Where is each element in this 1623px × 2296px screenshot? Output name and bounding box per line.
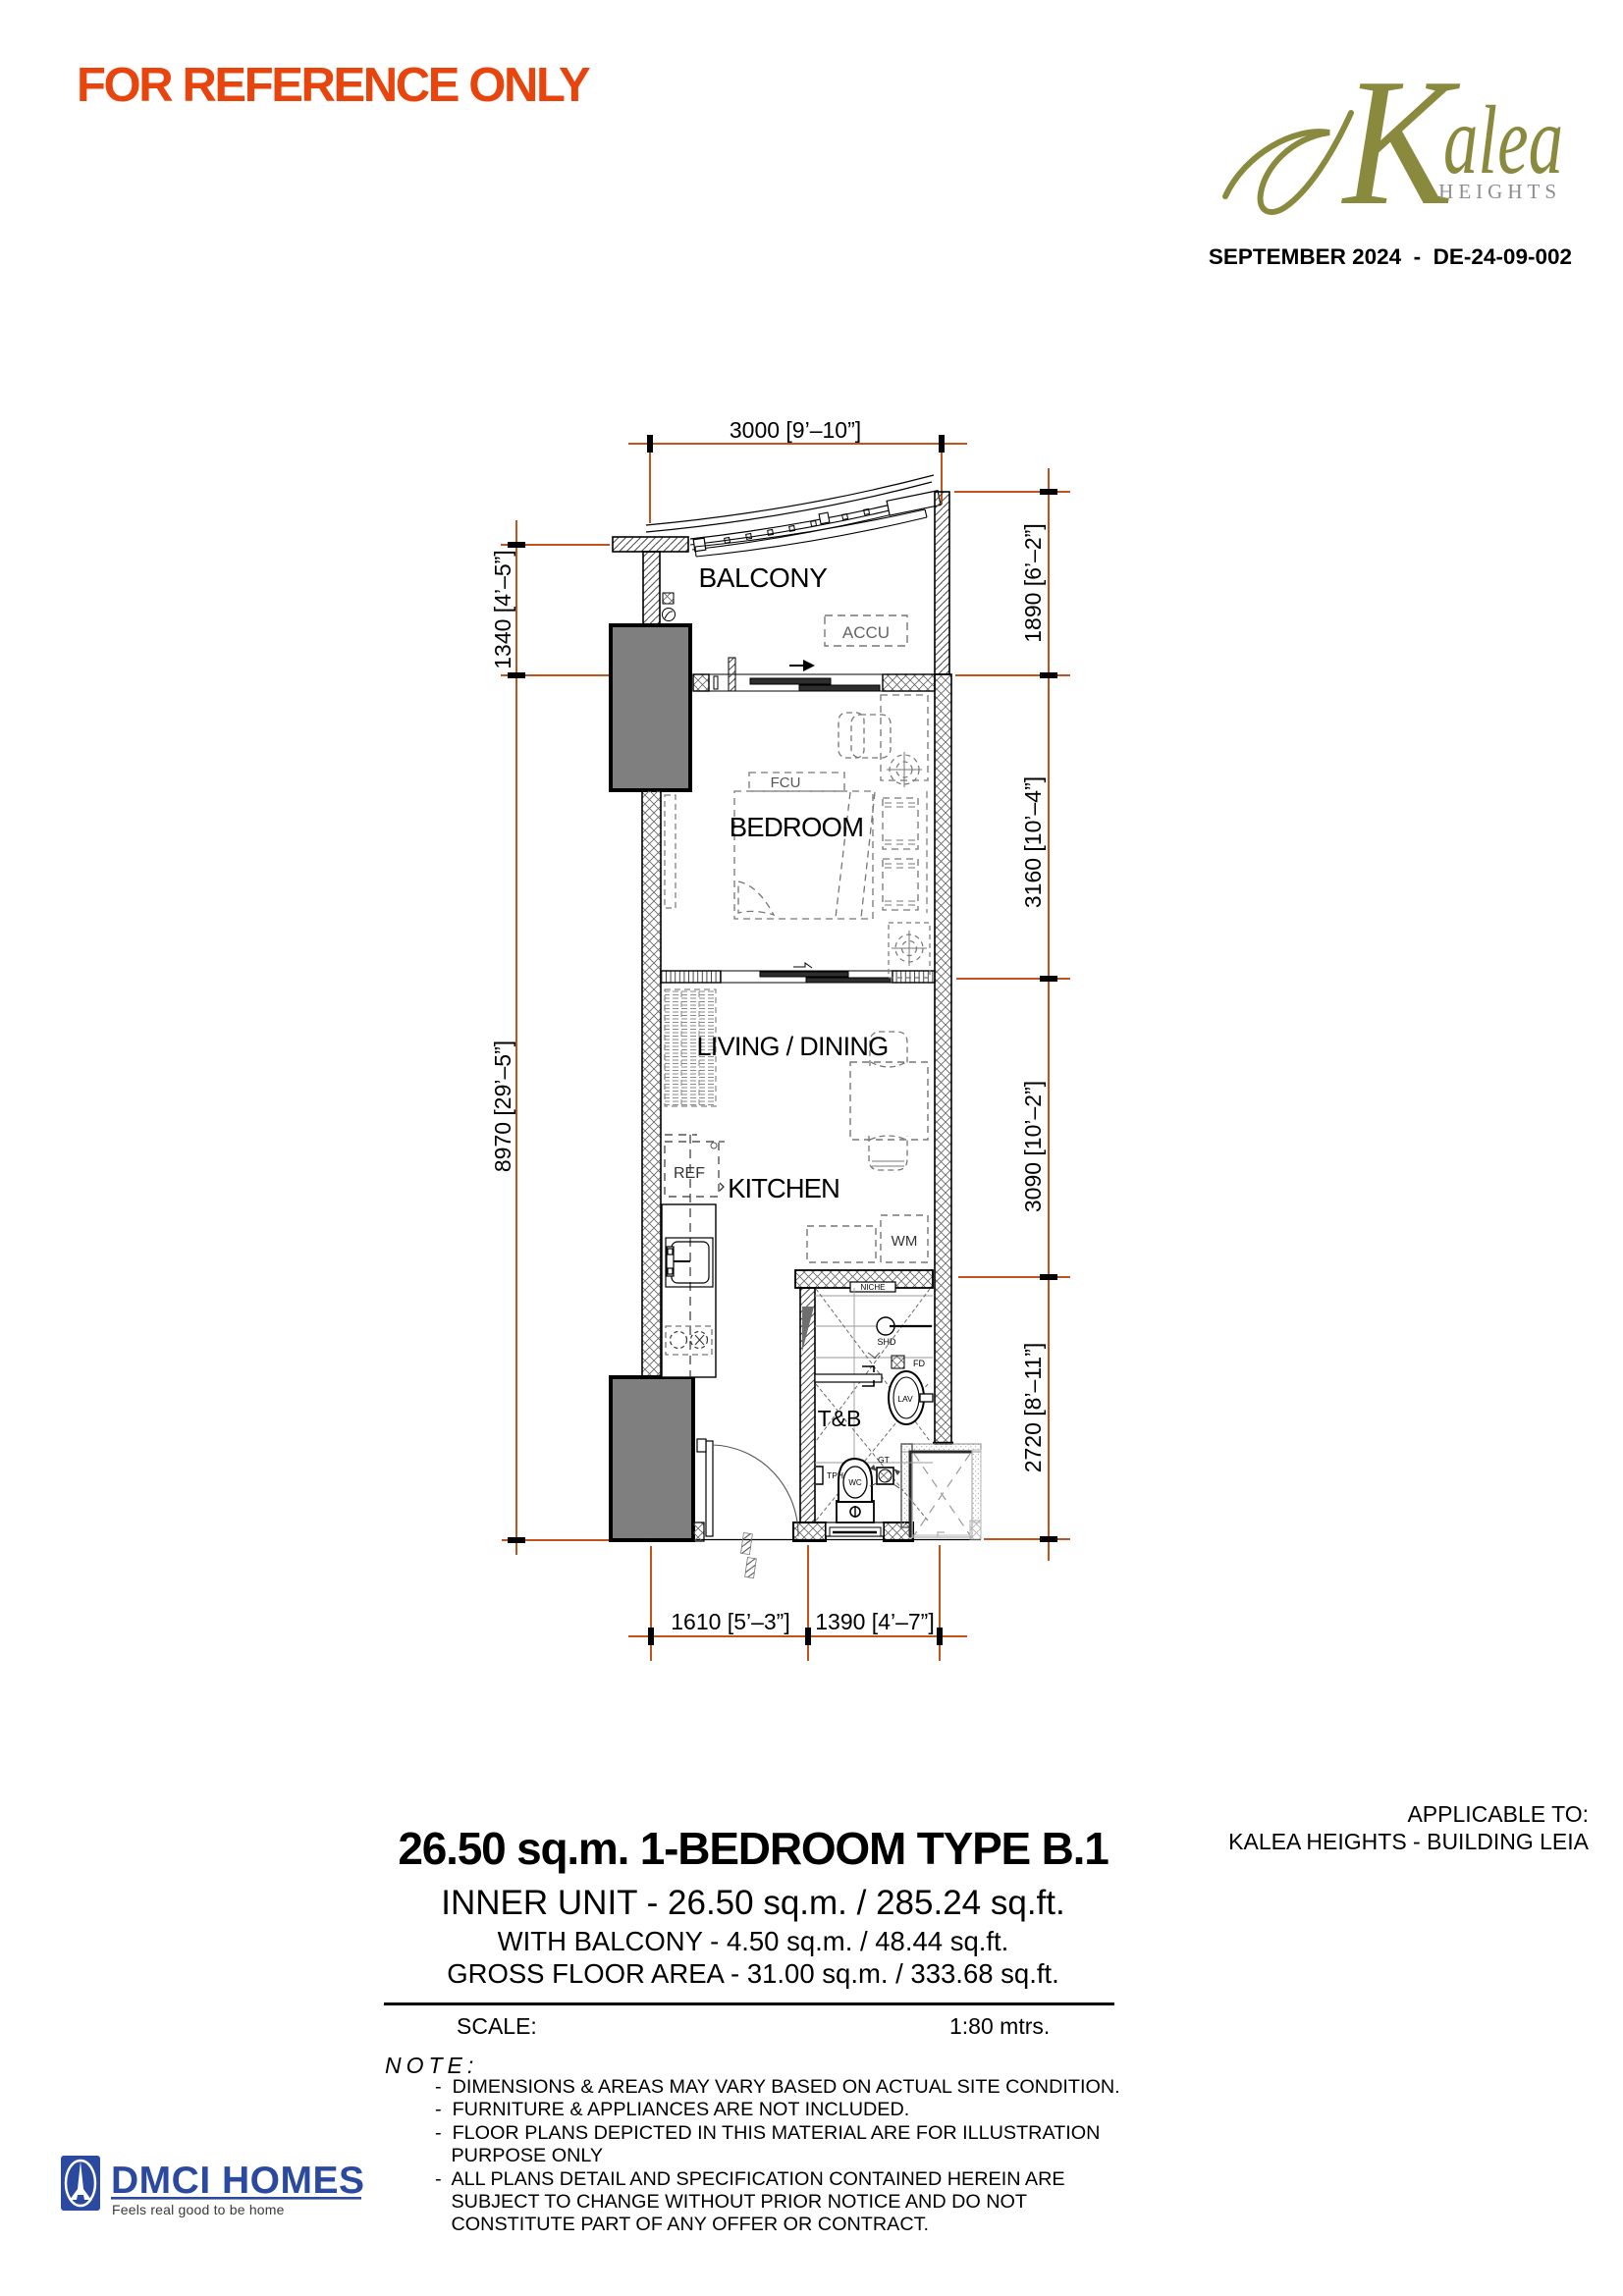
svg-text:KITCHEN: KITCHEN: [728, 1173, 839, 1203]
svg-text:1390 [4’–7”]: 1390 [4’–7”]: [815, 1609, 934, 1634]
svg-text:FCU: FCU: [771, 774, 801, 791]
svg-text:NICHE: NICHE: [861, 1283, 886, 1292]
svg-text:8970 [29’–5”]: 8970 [29’–5”]: [490, 1041, 515, 1172]
svg-text:BALCONY: BALCONY: [698, 562, 828, 593]
svg-text:ACCU: ACCU: [842, 623, 890, 642]
svg-text:DMCI HOMES: DMCI HOMES: [111, 2160, 365, 2202]
svg-text:TPH: TPH: [827, 1470, 843, 1480]
svg-text:3160 [10’–4”]: 3160 [10’–4”]: [1020, 776, 1046, 908]
svg-text:WM: WM: [892, 1233, 918, 1250]
svg-text:T&B: T&B: [818, 1406, 862, 1431]
svg-text:SHD: SHD: [877, 1337, 896, 1347]
svg-text:2720 [8’–11”]: 2720 [8’–11”]: [1020, 1343, 1046, 1473]
svg-text:WC: WC: [848, 1478, 862, 1487]
svg-text:BEDROOM: BEDROOM: [730, 812, 864, 842]
svg-text:3090 [10’–2”]: 3090 [10’–2”]: [1020, 1081, 1046, 1212]
svg-text:REF: REF: [674, 1165, 705, 1182]
svg-text:1890 [6’–2”]: 1890 [6’–2”]: [1020, 523, 1046, 642]
svg-text:LAV: LAV: [897, 1394, 913, 1404]
svg-text:FD: FD: [913, 1359, 925, 1368]
svg-text:GT: GT: [878, 1455, 890, 1465]
svg-text:3000 [9’–10”]: 3000 [9’–10”]: [730, 417, 861, 443]
svg-text:Feels real good to be home: Feels real good to be home: [112, 2202, 285, 2217]
svg-text:1610 [5’–3”]: 1610 [5’–3”]: [671, 1609, 789, 1634]
svg-text:LIVING / DINING: LIVING / DINING: [696, 1032, 888, 1061]
svg-text:1340 [4’–5”]: 1340 [4’–5”]: [490, 550, 515, 668]
